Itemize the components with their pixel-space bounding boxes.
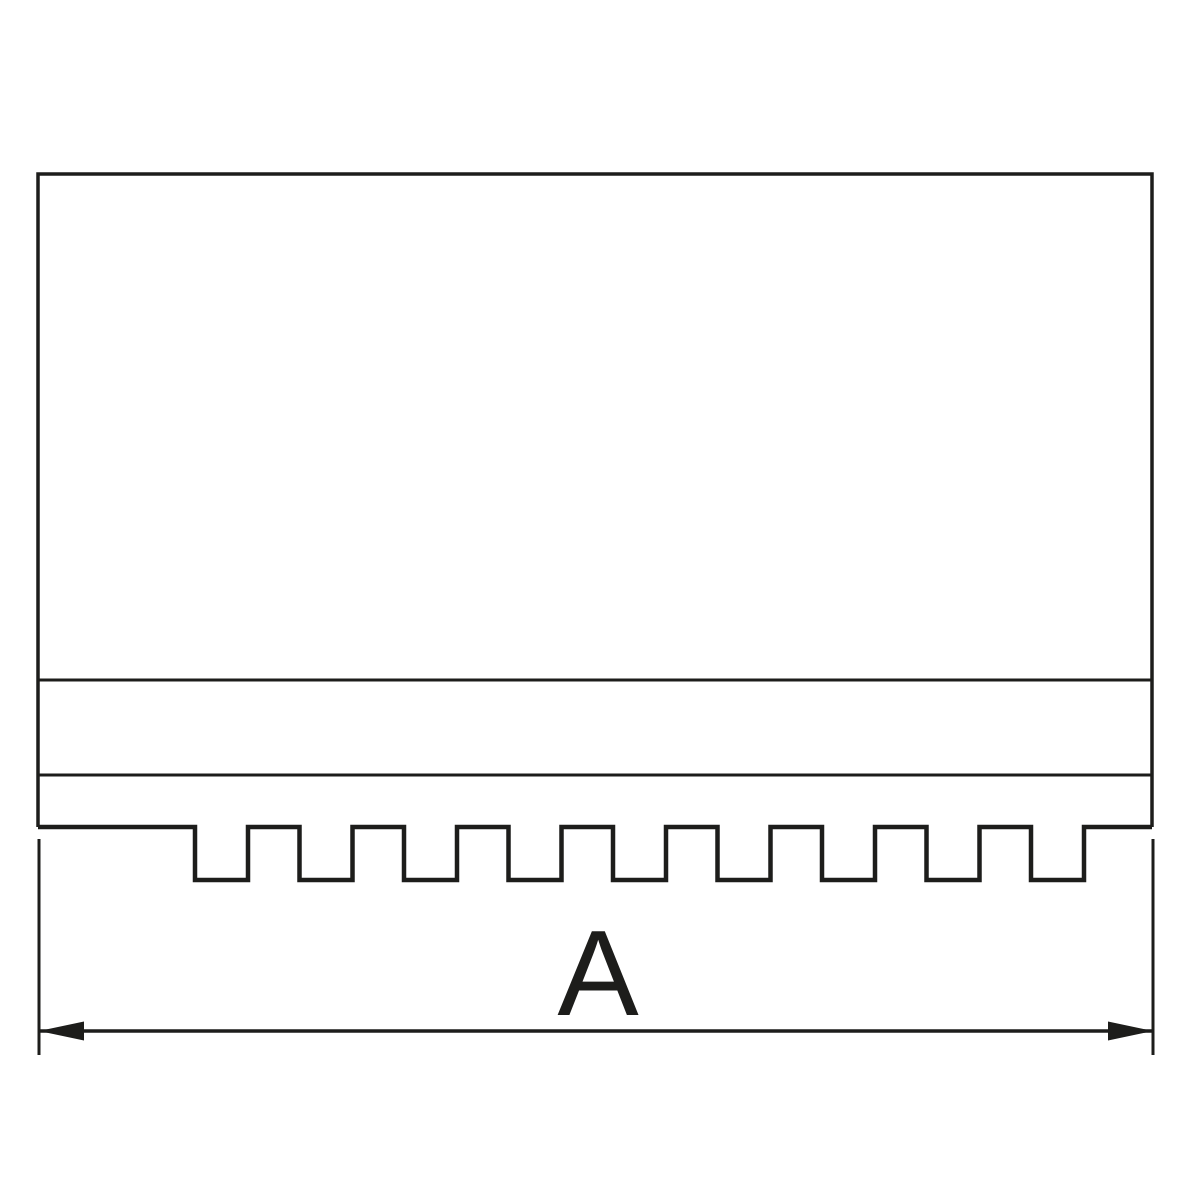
jaw-serrated-profile [38, 827, 1152, 880]
dimension-arrow-right-icon [1108, 1022, 1153, 1041]
technical-drawing-canvas: A [0, 0, 1200, 1200]
jaw-body-outline [38, 174, 1152, 827]
dimension-arrow-left-icon [39, 1022, 84, 1041]
soft-jaw-technical-drawing: A [0, 0, 1200, 1200]
dimension-label: A [557, 905, 639, 1041]
